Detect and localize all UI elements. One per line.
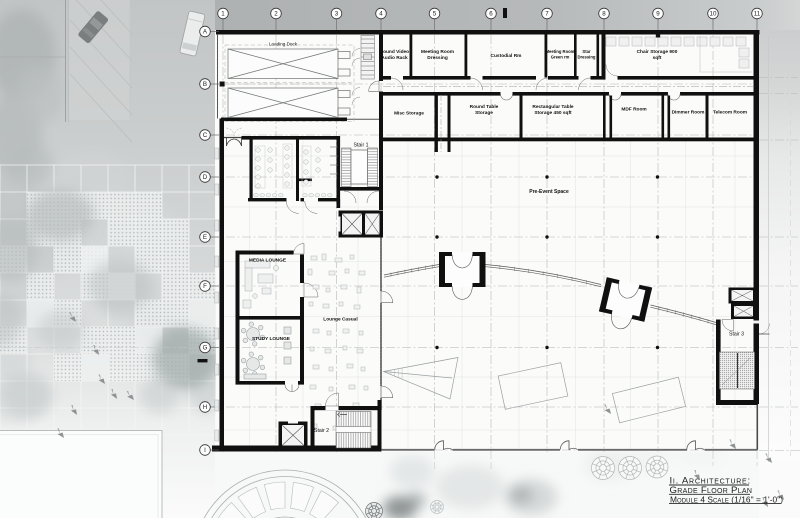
svg-text:4: 4 <box>379 11 383 18</box>
svg-text:G: G <box>203 345 208 352</box>
svg-text:C: C <box>203 132 208 139</box>
svg-text:MEDIA LOUNGE: MEDIA LOUNGE <box>249 258 287 264</box>
svg-text:6: 6 <box>489 11 493 18</box>
svg-text:Stair 1: Stair 1 <box>354 143 369 149</box>
svg-text:sqft: sqft <box>653 55 662 61</box>
svg-text:11: 11 <box>754 11 761 18</box>
svg-text:Custodial Rm: Custodial Rm <box>491 53 522 59</box>
svg-text:B: B <box>203 81 207 88</box>
svg-text:H: H <box>203 404 207 411</box>
svg-text:Stair 3: Stair 3 <box>729 332 744 338</box>
svg-text:Lounge Casual: Lounge Casual <box>323 317 357 323</box>
svg-text:Stair 2: Stair 2 <box>314 428 329 434</box>
svg-text:9: 9 <box>656 11 660 18</box>
svg-text:Chair Storage 900: Chair Storage 900 <box>637 49 678 55</box>
svg-text:7: 7 <box>545 11 549 18</box>
svg-text:Dressing: Dressing <box>578 54 596 59</box>
svg-text:Pre-Event Space: Pre-Event Space <box>529 189 569 195</box>
svg-text:F: F <box>203 283 207 290</box>
svg-text:5: 5 <box>433 11 437 18</box>
svg-text:Telecom Room: Telecom Room <box>713 110 747 116</box>
svg-text:Meeting Room: Meeting Room <box>421 49 454 55</box>
svg-text:10: 10 <box>710 11 717 18</box>
svg-text:2: 2 <box>274 11 278 18</box>
svg-text:Round Table: Round Table <box>470 104 499 110</box>
svg-text:8: 8 <box>602 11 606 18</box>
svg-text:D: D <box>203 174 208 181</box>
svg-text:1: 1 <box>221 11 225 18</box>
svg-text:Audio Rack: Audio Rack <box>381 55 408 61</box>
svg-text:I: I <box>204 447 206 454</box>
svg-text:STUDY LOUNGE: STUDY LOUNGE <box>252 336 291 342</box>
svg-text:Misc Storage: Misc Storage <box>394 111 424 117</box>
svg-text:Sound Video: Sound Video <box>380 49 409 55</box>
svg-text:Rectangular Table: Rectangular Table <box>532 104 574 110</box>
svg-text:Loading Dock: Loading Dock <box>269 42 298 47</box>
svg-text:Module 4 Scale (1/16" = 1'-0"): Module 4 Scale (1/16" = 1'-0") <box>670 494 783 504</box>
svg-text:Dressing: Dressing <box>427 55 448 61</box>
svg-text:Storage 450 sqft: Storage 450 sqft <box>534 110 572 116</box>
svg-text:3: 3 <box>335 11 339 18</box>
svg-text:MDF Room: MDF Room <box>621 107 646 113</box>
svg-text:Meeting Room: Meeting Room <box>546 49 575 54</box>
svg-text:Green rm: Green rm <box>551 54 570 59</box>
svg-text:Dimmer Room: Dimmer Room <box>672 110 705 116</box>
svg-text:E: E <box>203 234 207 241</box>
svg-text:Storage: Storage <box>475 110 493 116</box>
svg-text:Star: Star <box>582 49 591 54</box>
